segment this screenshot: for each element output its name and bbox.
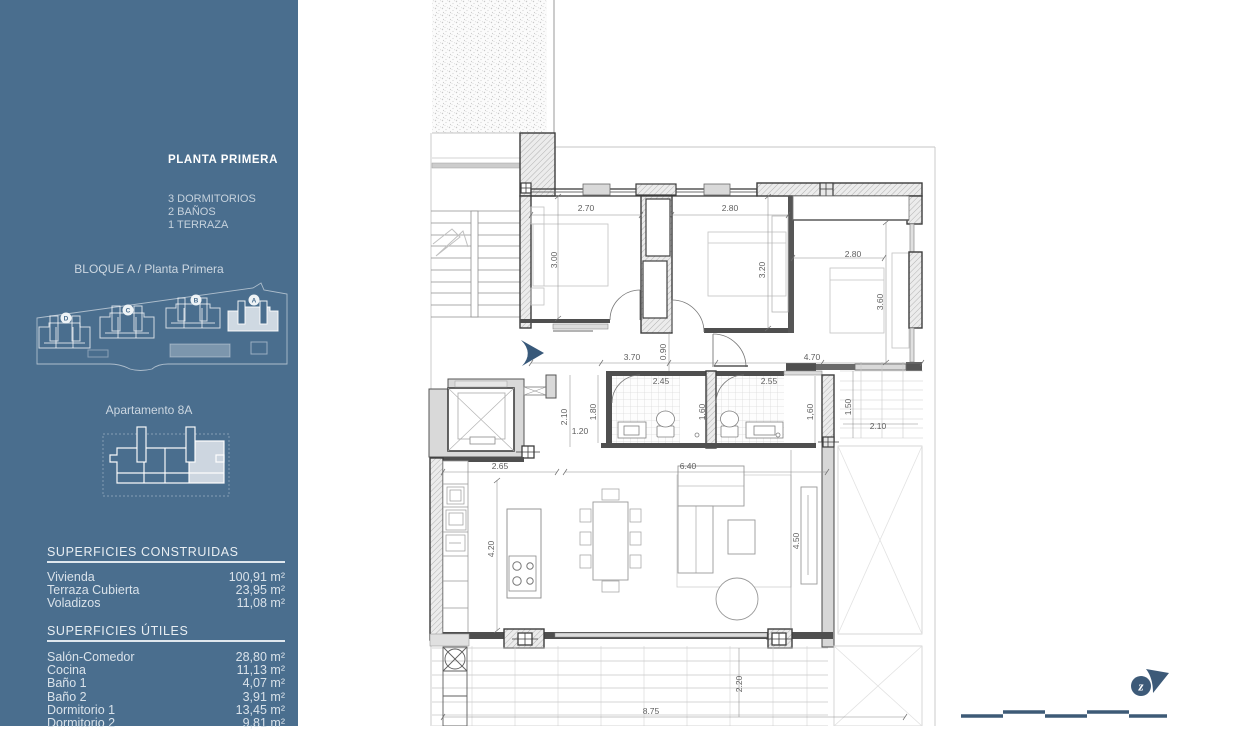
svg-text:4.20: 4.20 [486, 540, 496, 557]
svg-text:2.80: 2.80 [722, 203, 739, 213]
svg-text:6.40: 6.40 [680, 461, 697, 471]
svg-text:2.55: 2.55 [761, 376, 778, 386]
svg-text:A: A [252, 298, 257, 305]
svg-text:0.90: 0.90 [658, 343, 668, 360]
svg-text:4.50: 4.50 [791, 532, 801, 549]
svg-text:1.80: 1.80 [588, 403, 598, 420]
svg-text:1.20: 1.20 [572, 426, 589, 436]
svg-text:2.10: 2.10 [559, 408, 569, 425]
svg-text:3.60: 3.60 [875, 293, 885, 310]
svg-text:2.70: 2.70 [578, 203, 595, 213]
svg-text:2.10: 2.10 [870, 421, 887, 431]
svg-text:8.75: 8.75 [643, 706, 660, 716]
svg-text:1.50: 1.50 [843, 398, 853, 415]
svg-text:3.70: 3.70 [624, 352, 641, 362]
svg-text:C: C [126, 308, 131, 315]
svg-text:2.65: 2.65 [492, 461, 509, 471]
svg-text:B: B [194, 298, 199, 305]
svg-text:2.45: 2.45 [653, 376, 670, 386]
svg-text:z: z [1137, 679, 1144, 694]
svg-text:4.70: 4.70 [804, 352, 821, 362]
svg-text:2.80: 2.80 [845, 249, 862, 259]
svg-text:D: D [64, 316, 69, 323]
svg-text:3.20: 3.20 [757, 261, 767, 278]
svg-text:1,60: 1,60 [805, 403, 815, 420]
svg-text:3.00: 3.00 [549, 251, 559, 268]
svg-text:1,60: 1,60 [697, 403, 707, 420]
svg-text:2.20: 2.20 [734, 675, 744, 692]
